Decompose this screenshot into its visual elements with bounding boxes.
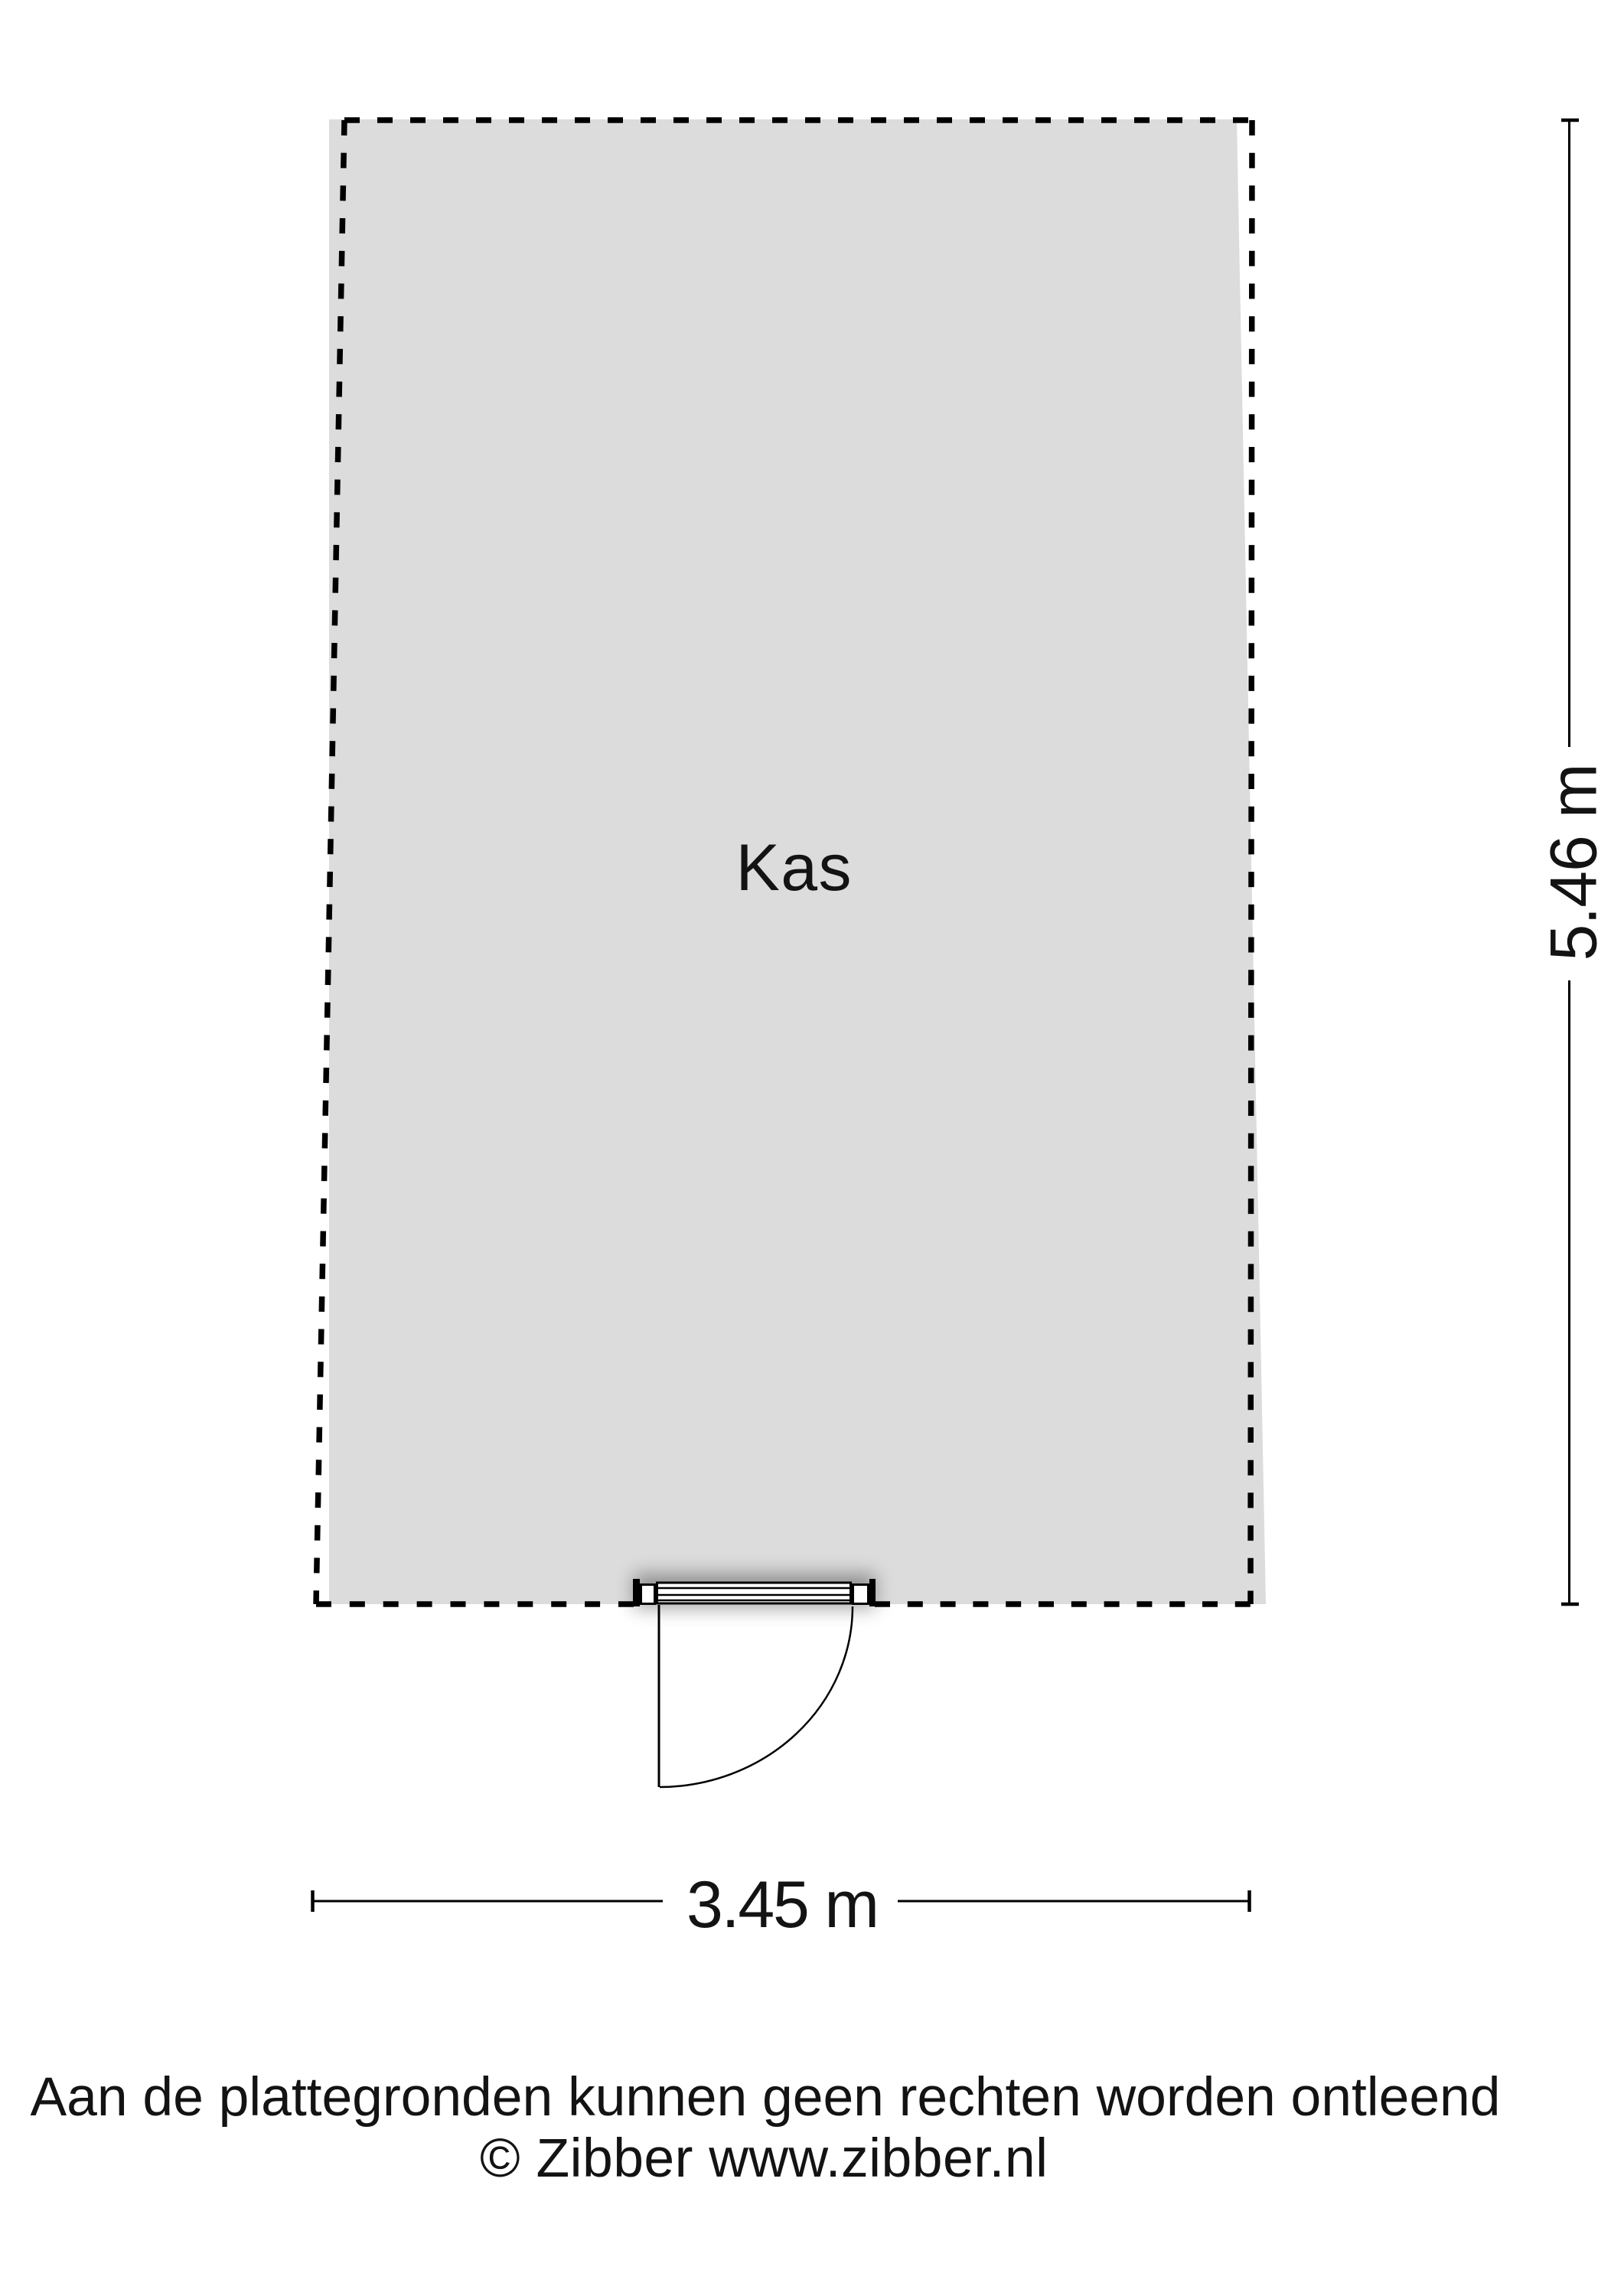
svg-text:5.46 m: 5.46 m	[1538, 764, 1611, 961]
svg-text:3.45 m: 3.45 m	[686, 1868, 879, 1942]
svg-text:© Zibber www.zibber.nl: © Zibber www.zibber.nl	[480, 2128, 1048, 2189]
svg-text:Aan de plattegronden kunnen ge: Aan de plattegronden kunnen geen rechten…	[31, 2066, 1501, 2128]
svg-text:Kas: Kas	[736, 831, 852, 905]
